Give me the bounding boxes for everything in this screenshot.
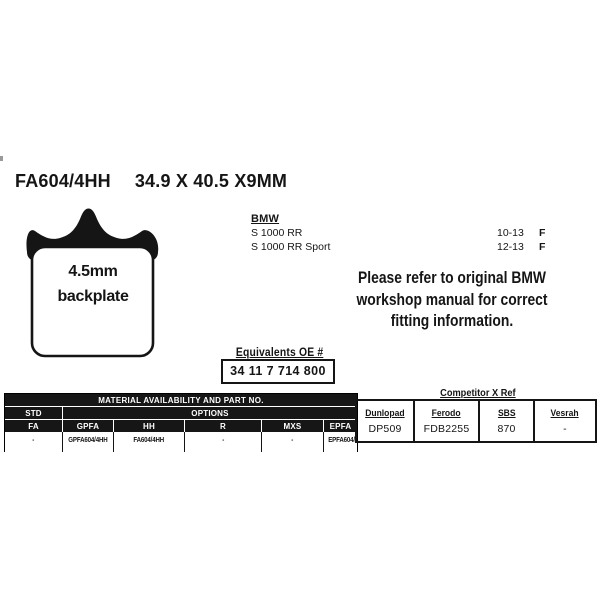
fitment-row: S 1000 RR Sport 12-13 F bbox=[251, 241, 561, 253]
options-header: OPTIONS bbox=[63, 407, 357, 419]
material-table-values-row: - GPFA604/4HH FA604/4HH - - EPFA604/4HH bbox=[5, 432, 357, 452]
competitor-header-vesrah: Vesrah bbox=[535, 401, 595, 422]
value-gpfa: GPFA604/4HH bbox=[63, 432, 114, 452]
page-title: FA604/4HH34.9 X 40.5 X9MM bbox=[15, 171, 287, 192]
part-number: FA604/4HH bbox=[15, 171, 111, 191]
fitment-make: BMW bbox=[251, 213, 561, 225]
competitor-header-ferodo: Ferodo bbox=[415, 401, 480, 422]
fitment-years: 12-13 bbox=[497, 241, 537, 253]
backplate-word: backplate bbox=[32, 284, 154, 309]
material-table-columns-row: FA GPFA HH R MXS EPFA bbox=[5, 420, 357, 432]
competitor-value-vesrah: - bbox=[535, 422, 595, 441]
competitor-header-sbs: SBS bbox=[480, 401, 535, 422]
std-header: STD bbox=[5, 407, 63, 419]
note-line: workshop manual for correct bbox=[339, 290, 564, 312]
competitor-values-row: DP509 FDB2255 870 - bbox=[357, 422, 595, 441]
competitor-value-dunlopad: DP509 bbox=[357, 422, 415, 441]
column-header-fa: FA bbox=[5, 420, 63, 432]
material-availability-table: MATERIAL AVAILABILITY AND PART NO. STD O… bbox=[4, 393, 358, 452]
pad-dimensions: 34.9 X 40.5 X9MM bbox=[135, 171, 287, 191]
column-header-mxs: MXS bbox=[262, 420, 324, 432]
column-header-epfa: EPFA bbox=[324, 420, 357, 432]
value-r: - bbox=[185, 432, 262, 452]
competitor-header-dunlopad: Dunlopad bbox=[357, 401, 415, 422]
material-table-title: MATERIAL AVAILABILITY AND PART NO. bbox=[5, 394, 357, 407]
competitor-header-row: Dunlopad Ferodo SBS Vesrah bbox=[357, 401, 595, 422]
catalog-page: FA604/4HH34.9 X 40.5 X9MM 4.5mm backplat… bbox=[0, 0, 600, 600]
fitment-row: S 1000 RR 10-13 F bbox=[251, 227, 561, 239]
material-table-group-row: STD OPTIONS bbox=[5, 407, 357, 420]
scan-speck bbox=[0, 156, 3, 161]
competitor-value-ferodo: FDB2255 bbox=[415, 422, 480, 441]
value-fa: - bbox=[5, 432, 63, 452]
backplate-label: 4.5mm backplate bbox=[32, 259, 154, 309]
value-hh: FA604/4HH bbox=[114, 432, 185, 452]
material-table-header: MATERIAL AVAILABILITY AND PART NO. STD O… bbox=[5, 394, 357, 432]
competitor-xref-table: Dunlopad Ferodo SBS Vesrah DP509 FDB2255… bbox=[355, 399, 597, 443]
fitment-model: S 1000 RR Sport bbox=[251, 241, 497, 253]
fitment-years: 10-13 bbox=[497, 227, 537, 239]
note-line: Please refer to original BMW bbox=[339, 268, 564, 290]
column-header-hh: HH bbox=[114, 420, 185, 432]
fitment-position: F bbox=[539, 241, 559, 253]
backplate-thickness: 4.5mm bbox=[32, 259, 154, 284]
fitment-position: F bbox=[539, 227, 559, 239]
column-header-gpfa: GPFA bbox=[63, 420, 114, 432]
column-header-r: R bbox=[185, 420, 262, 432]
oe-number-box: 34 11 7 714 800 bbox=[221, 359, 335, 384]
note-line: fitting information. bbox=[339, 311, 564, 333]
fitment-section: BMW S 1000 RR 10-13 F S 1000 RR Sport 12… bbox=[251, 213, 561, 253]
value-epfa: EPFA604/4HH bbox=[324, 432, 357, 452]
workshop-manual-note: Please refer to original BMW workshop ma… bbox=[339, 268, 564, 333]
value-mxs: - bbox=[262, 432, 324, 452]
fitment-model: S 1000 RR bbox=[251, 227, 497, 239]
competitor-value-sbs: 870 bbox=[480, 422, 535, 441]
